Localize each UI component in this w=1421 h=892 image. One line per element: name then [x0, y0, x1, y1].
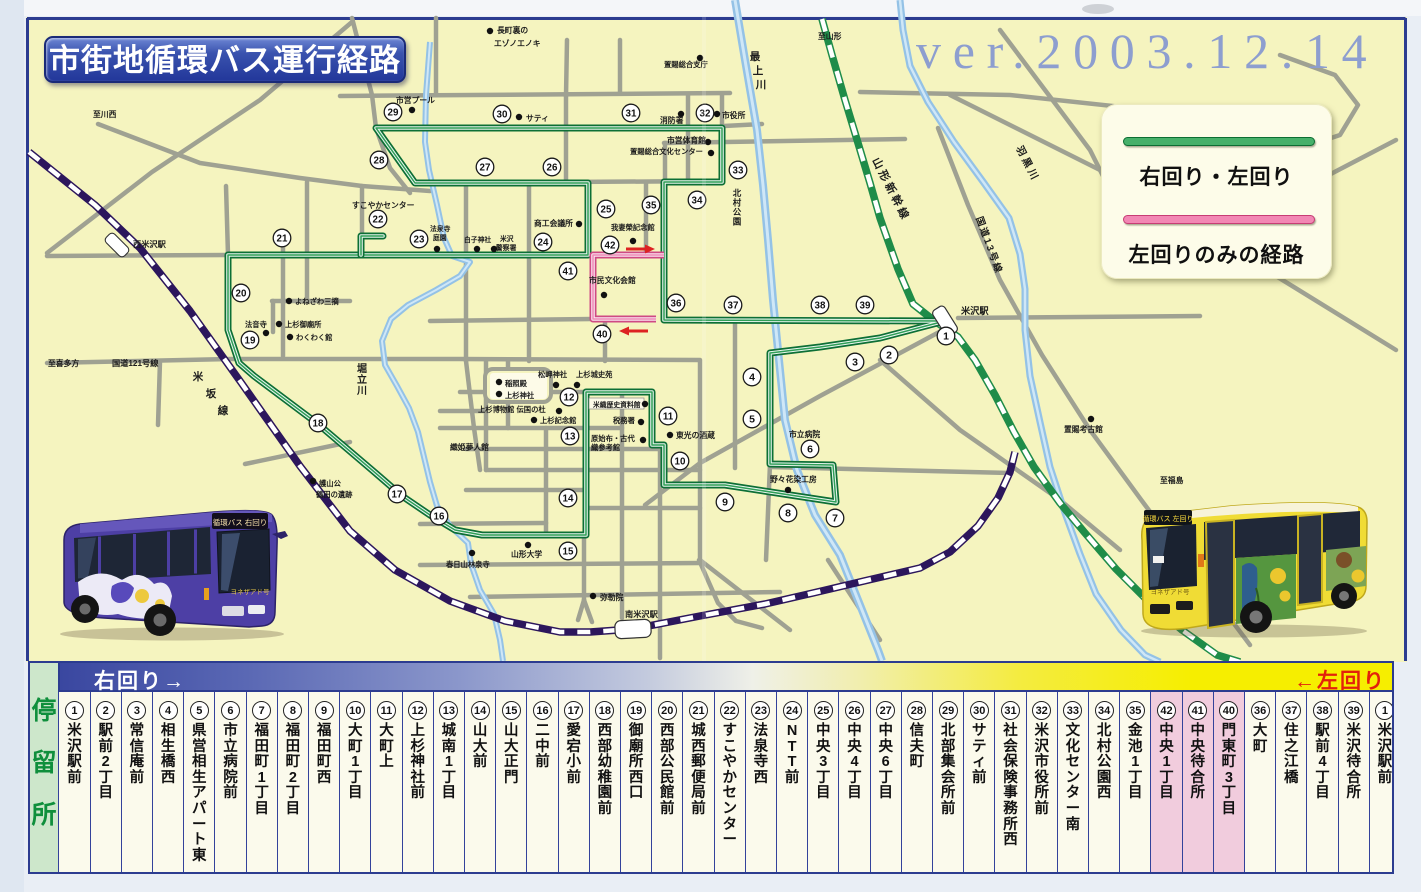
svg-text:白子神社: 白子神社	[464, 235, 491, 244]
svg-text:エゾノエノキ: エゾノエノキ	[494, 38, 541, 48]
svg-text:8: 8	[785, 508, 791, 520]
svg-text:6: 6	[807, 444, 813, 456]
svg-text:米織歴史資料館: 米織歴史資料館	[593, 400, 641, 409]
svg-text:ヨネザアド号: ヨネザアド号	[231, 588, 271, 596]
svg-text:循環バス 左回り: 循環バス 左回り	[1143, 514, 1194, 523]
svg-text:24: 24	[538, 238, 549, 249]
svg-text:西米沢駅: 西米沢駅	[133, 239, 167, 249]
svg-text:2: 2	[886, 350, 892, 362]
svg-text:国道121号線: 国道121号線	[112, 358, 159, 368]
svg-text:堀立川: 堀立川	[356, 362, 367, 397]
svg-text:23: 23	[414, 235, 425, 246]
svg-text:41: 41	[563, 267, 574, 278]
svg-text:7: 7	[832, 513, 838, 525]
svg-text:30: 30	[497, 110, 508, 121]
svg-text:至福島: 至福島	[1160, 475, 1184, 485]
svg-text:米沢: 米沢	[500, 234, 514, 243]
svg-text:商工会議所: 商工会議所	[534, 218, 573, 228]
svg-text:上杉城史苑: 上杉城史苑	[576, 370, 613, 379]
svg-text:38: 38	[815, 301, 826, 312]
svg-text:至喜多方: 至喜多方	[48, 358, 79, 368]
svg-text:40: 40	[597, 330, 608, 341]
svg-text:35: 35	[646, 201, 657, 212]
svg-text:市営体育館: 市営体育館	[667, 135, 706, 145]
svg-text:19: 19	[245, 336, 256, 347]
svg-text:34: 34	[692, 196, 703, 207]
svg-text:原始布・古代: 原始布・古代	[591, 434, 635, 443]
svg-text:置賜考古館: 置賜考古館	[1064, 424, 1103, 434]
svg-text:11: 11	[663, 412, 674, 423]
svg-text:織参考館: 織参考館	[591, 443, 620, 452]
svg-text:12: 12	[564, 393, 575, 404]
svg-text:消防署: 消防署	[660, 115, 684, 125]
svg-text:弥勒院: 弥勒院	[600, 592, 624, 602]
svg-text:20: 20	[236, 289, 247, 300]
svg-text:至山形: 至山形	[818, 31, 842, 41]
svg-text:21: 21	[277, 234, 288, 245]
svg-text:15: 15	[563, 547, 574, 558]
svg-text:東光の酒蔵: 東光の酒蔵	[676, 430, 715, 440]
svg-text:すこやかセンター: すこやかセンター	[352, 200, 415, 210]
svg-text:1: 1	[943, 331, 949, 343]
svg-text:13: 13	[565, 432, 576, 443]
svg-text:3: 3	[852, 357, 858, 369]
svg-text:上杉博物館 伝国の杜: 上杉博物館 伝国の杜	[478, 405, 546, 414]
svg-text:稲照殿: 稲照殿	[505, 379, 528, 388]
svg-text:37: 37	[728, 301, 739, 312]
svg-text:庭園: 庭園	[433, 233, 447, 242]
svg-text:22: 22	[373, 215, 384, 226]
svg-text:我妻榮記念館: 我妻榮記念館	[611, 223, 655, 232]
svg-text:長町裏の: 長町裏の	[497, 25, 528, 35]
svg-text:サティ: サティ	[526, 114, 549, 123]
svg-text:法泉寺: 法泉寺	[430, 224, 451, 233]
svg-text:14: 14	[563, 494, 574, 505]
svg-text:9: 9	[722, 497, 728, 509]
svg-text:市役所: 市役所	[722, 110, 746, 120]
svg-text:18: 18	[313, 419, 324, 430]
svg-text:よねざわ三摘: よねざわ三摘	[295, 297, 339, 306]
svg-text:上杉御廟所: 上杉御廟所	[285, 320, 322, 329]
svg-text:5: 5	[749, 414, 755, 426]
svg-text:春日山林泉寺: 春日山林泉寺	[445, 560, 490, 569]
svg-text:上杉神社: 上杉神社	[505, 391, 535, 400]
svg-text:護山公: 護山公	[319, 479, 342, 488]
svg-text:わくわく館: わくわく館	[296, 333, 332, 342]
svg-text:10: 10	[675, 457, 686, 468]
svg-text:法音寺: 法音寺	[245, 320, 268, 329]
svg-text:4: 4	[749, 372, 755, 384]
svg-text:27: 27	[480, 163, 491, 174]
svg-text:野々花染工房: 野々花染工房	[770, 474, 817, 484]
svg-text:南米沢駅: 南米沢駅	[625, 609, 659, 619]
svg-text:鶴田の遺跡: 鶴田の遺跡	[316, 490, 353, 499]
svg-text:置賜総合文化センター: 置賜総合文化センター	[630, 147, 703, 156]
svg-text:循環バス 右回り: 循環バス 右回り	[213, 517, 268, 527]
svg-text:26: 26	[547, 163, 558, 174]
svg-text:北村公園: 北村公園	[733, 188, 742, 227]
svg-text:税務署: 税務署	[613, 416, 636, 425]
svg-text:山形大学: 山形大学	[511, 549, 542, 559]
svg-text:織姫夢人館: 織姫夢人館	[450, 442, 489, 452]
svg-text:39: 39	[860, 301, 871, 312]
svg-text:至川西: 至川西	[93, 110, 117, 119]
svg-text:ヨネザアド号: ヨネザアド号	[1151, 588, 1191, 596]
svg-text:16: 16	[434, 512, 445, 523]
svg-text:市営プール: 市営プール	[396, 95, 435, 105]
svg-text:17: 17	[392, 490, 403, 501]
svg-text:米沢駅: 米沢駅	[960, 305, 989, 316]
svg-text:31: 31	[626, 109, 637, 120]
svg-text:28: 28	[374, 156, 385, 167]
svg-text:松岬神社: 松岬神社	[538, 370, 568, 379]
svg-text:上杉記念館: 上杉記念館	[540, 416, 576, 425]
svg-text:36: 36	[671, 299, 682, 310]
svg-text:42: 42	[605, 241, 616, 252]
svg-text:市立病院: 市立病院	[789, 429, 820, 439]
svg-text:置賜総合支庁: 置賜総合支庁	[664, 60, 708, 69]
svg-text:警察署: 警察署	[496, 243, 517, 252]
svg-text:33: 33	[733, 166, 744, 177]
svg-text:29: 29	[388, 108, 399, 119]
svg-text:25: 25	[601, 205, 612, 216]
svg-text:市民文化会館: 市民文化会館	[589, 275, 636, 285]
